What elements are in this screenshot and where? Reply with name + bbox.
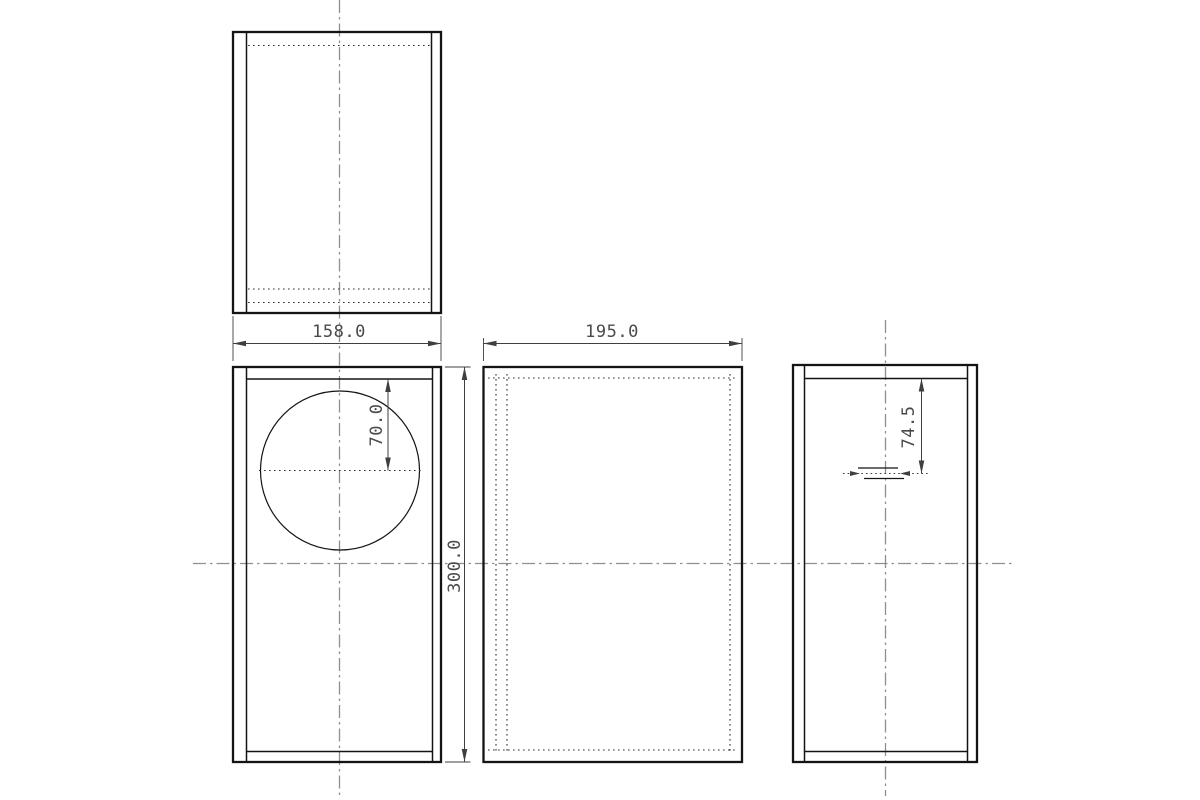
dimension-label-front-width: 158.0 (312, 322, 366, 342)
arrowhead-right (729, 341, 742, 347)
dimension-cabinet-height: 300.0 (445, 367, 471, 762)
arrowhead-top (462, 367, 468, 380)
dimension-terminal-offset: 74.5 (899, 379, 929, 474)
terminal-arrowhead-left (850, 471, 860, 476)
front-view (233, 367, 441, 762)
arrowhead-left (233, 341, 246, 347)
dimension-label-driver-offset: 70.0 (367, 404, 387, 447)
top-view-outline (233, 32, 441, 313)
arrowhead-bottom (462, 749, 468, 762)
dimension-label-terminal-offset: 74.5 (899, 406, 919, 449)
dimension-driver-offset: 70.0 (367, 379, 391, 471)
dimension-cabinet-depth: 195.0 (484, 322, 743, 361)
dimension-label-cabinet-depth: 195.0 (585, 322, 639, 342)
arrowhead-left (484, 341, 497, 347)
arrowhead-top (385, 379, 391, 392)
arrowhead-bottom (385, 458, 391, 471)
dimensions: 158.0 195.0 300.0 70.0 (233, 316, 929, 762)
side-view (484, 367, 743, 762)
dimension-label-cabinet-height: 300.0 (445, 539, 465, 593)
side-view-outline (484, 367, 743, 762)
centerlines (193, 0, 1015, 796)
top-view (233, 32, 441, 313)
arrowhead-bottom (919, 461, 925, 474)
cad-drawing-canvas: 158.0 195.0 300.0 70.0 (0, 0, 1200, 800)
arrowhead-right (428, 341, 441, 347)
front-view-outline (233, 367, 441, 762)
terminal-detail (843, 468, 912, 479)
dimension-front-width: 158.0 (233, 316, 441, 361)
arrowhead-top (919, 379, 925, 392)
